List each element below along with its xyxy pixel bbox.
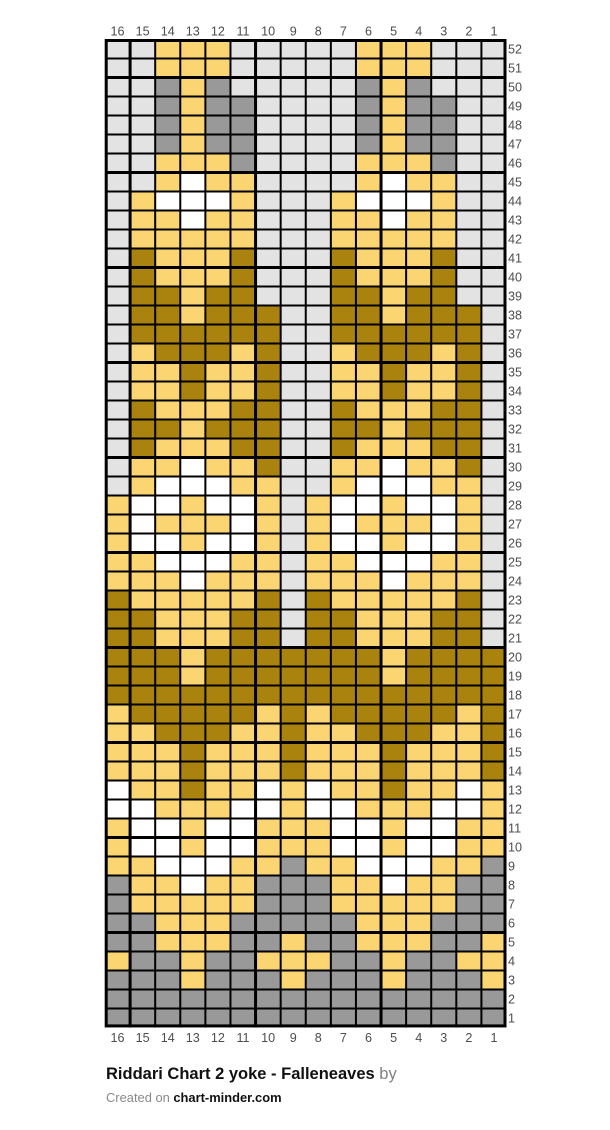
svg-text:35: 35	[508, 366, 522, 380]
svg-text:10: 10	[261, 24, 275, 38]
svg-text:15: 15	[508, 746, 522, 760]
svg-text:8: 8	[508, 879, 515, 893]
svg-text:7: 7	[340, 1031, 347, 1045]
svg-text:40: 40	[508, 271, 522, 285]
svg-text:16: 16	[110, 1031, 124, 1045]
svg-text:33: 33	[508, 404, 522, 418]
svg-text:24: 24	[508, 575, 522, 589]
svg-text:29: 29	[508, 480, 522, 494]
svg-text:22: 22	[508, 613, 522, 627]
svg-text:1: 1	[508, 1012, 515, 1026]
svg-text:28: 28	[508, 499, 522, 513]
svg-text:42: 42	[508, 233, 522, 247]
svg-text:50: 50	[508, 81, 522, 95]
svg-text:5: 5	[508, 936, 515, 950]
svg-text:48: 48	[508, 119, 522, 133]
svg-text:36: 36	[508, 347, 522, 361]
svg-text:6: 6	[508, 917, 515, 931]
svg-text:14: 14	[161, 1031, 175, 1045]
svg-text:Riddari Chart 2 yoke - Fallene: Riddari Chart 2 yoke - Falleneaves by	[106, 1065, 397, 1083]
svg-text:11: 11	[236, 1031, 249, 1045]
svg-text:46: 46	[508, 157, 522, 171]
svg-text:8: 8	[315, 1031, 322, 1045]
svg-text:2: 2	[465, 1031, 472, 1045]
svg-text:51: 51	[508, 62, 522, 76]
svg-text:9: 9	[290, 1031, 297, 1045]
svg-text:15: 15	[136, 24, 150, 38]
svg-text:3: 3	[440, 1031, 447, 1045]
svg-text:11: 11	[508, 822, 521, 836]
svg-text:9: 9	[508, 860, 515, 874]
svg-text:3: 3	[440, 24, 447, 38]
svg-text:5: 5	[390, 1031, 397, 1045]
svg-text:3: 3	[508, 974, 515, 988]
svg-text:5: 5	[390, 24, 397, 38]
svg-text:30: 30	[508, 461, 522, 475]
svg-text:12: 12	[211, 1031, 225, 1045]
svg-text:13: 13	[508, 784, 522, 798]
svg-text:4: 4	[508, 955, 515, 969]
svg-text:21: 21	[508, 632, 522, 646]
svg-text:19: 19	[508, 670, 522, 684]
svg-text:7: 7	[508, 898, 515, 912]
svg-text:13: 13	[186, 24, 200, 38]
svg-text:41: 41	[508, 252, 522, 266]
svg-text:27: 27	[508, 518, 522, 532]
svg-text:14: 14	[508, 765, 522, 779]
svg-text:26: 26	[508, 537, 522, 551]
svg-text:23: 23	[508, 594, 522, 608]
svg-text:13: 13	[186, 1031, 200, 1045]
svg-text:16: 16	[508, 727, 522, 741]
svg-text:39: 39	[508, 290, 522, 304]
svg-text:34: 34	[508, 385, 522, 399]
svg-text:18: 18	[508, 689, 522, 703]
svg-text:4: 4	[415, 24, 422, 38]
svg-text:31: 31	[508, 442, 522, 456]
svg-text:20: 20	[508, 651, 522, 665]
svg-text:44: 44	[508, 195, 522, 209]
svg-text:10: 10	[261, 1031, 275, 1045]
svg-text:32: 32	[508, 423, 522, 437]
svg-text:25: 25	[508, 556, 522, 570]
svg-text:17: 17	[508, 708, 522, 722]
svg-text:4: 4	[415, 1031, 422, 1045]
svg-text:12: 12	[508, 803, 522, 817]
svg-text:37: 37	[508, 328, 522, 342]
svg-text:10: 10	[508, 841, 522, 855]
svg-text:52: 52	[508, 43, 522, 57]
svg-text:6: 6	[365, 24, 372, 38]
svg-text:11: 11	[236, 24, 249, 38]
svg-text:15: 15	[136, 1031, 150, 1045]
svg-text:7: 7	[340, 24, 347, 38]
svg-text:2: 2	[508, 993, 515, 1007]
svg-text:38: 38	[508, 309, 522, 323]
svg-text:Created on chart-minder.com: Created on chart-minder.com	[106, 1090, 282, 1105]
svg-text:8: 8	[315, 24, 322, 38]
svg-text:12: 12	[211, 24, 225, 38]
svg-text:14: 14	[161, 24, 175, 38]
svg-text:49: 49	[508, 100, 522, 114]
svg-text:2: 2	[465, 24, 472, 38]
svg-text:45: 45	[508, 176, 522, 190]
svg-text:16: 16	[110, 24, 124, 38]
svg-text:6: 6	[365, 1031, 372, 1045]
svg-text:9: 9	[290, 24, 297, 38]
svg-text:43: 43	[508, 214, 522, 228]
svg-text:47: 47	[508, 138, 522, 152]
svg-text:1: 1	[490, 24, 497, 38]
svg-text:1: 1	[490, 1031, 497, 1045]
